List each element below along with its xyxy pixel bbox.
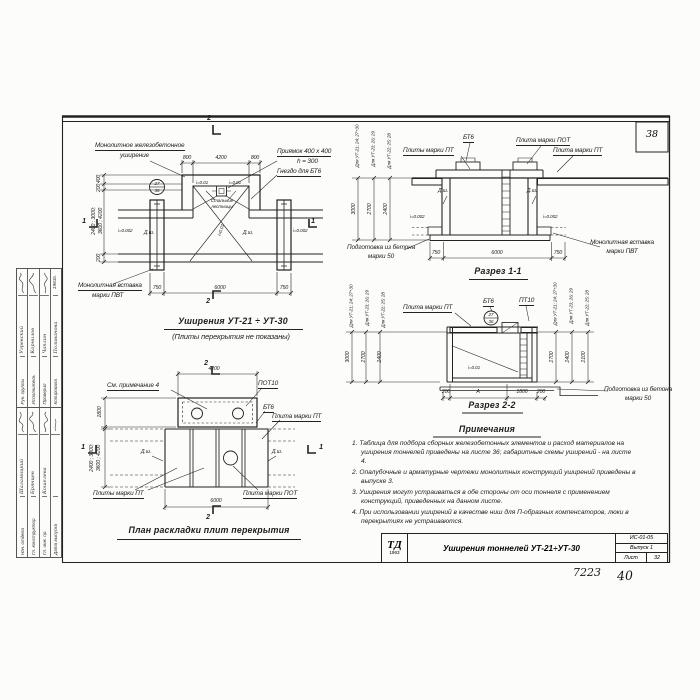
plan-top-subtitle: (Плиты перекрытия не показаны) — [172, 333, 290, 341]
plan-top-dim-400: 400 — [97, 175, 103, 183]
plan-top-label-steps-line2: лестницы — [211, 204, 233, 209]
stamp-row: Дата выпуска — [51, 408, 61, 557]
stamp-row: Гл. инж. пр. Кошелева — [40, 408, 51, 557]
plan-bottom-dim-1800: 1800 — [98, 406, 104, 417]
issue-number: Выпуск 1 — [616, 544, 667, 554]
sheet-row: Лист 32 — [616, 553, 667, 562]
stamp-role: Исполнитель — [31, 356, 36, 407]
plan-bottom-label-pt-bottom: Плиты марки ПТ — [93, 490, 144, 499]
stamp-row: Гл. конструктор Брянцев — [28, 408, 39, 557]
stamp-group-a: Нач. отдела Шаламицкий Гл. конструктор Б… — [17, 407, 61, 557]
stamp-row: Нач. отдела Шаламицкий — [17, 408, 28, 557]
section2-dim-200-left: 200 — [442, 390, 450, 396]
section-1-1-lines — [352, 143, 668, 280]
section1-dim-2700: 2700 — [368, 203, 374, 214]
section1-dim-2400: 2400 — [384, 203, 390, 214]
note-item-4: 4. При использовании уширений в качестве… — [352, 509, 638, 527]
section1-label-bt6: БТ6 — [463, 134, 474, 143]
plan-top-dim-4200: 4200 — [215, 156, 226, 162]
plan-top-title: Уширения УТ-21 ÷ УТ-30 — [178, 317, 288, 327]
section2-dim-200-right: 200 — [537, 390, 545, 396]
stamp-name: Чаплин — [42, 296, 48, 356]
plan-bottom-joint-right: Д.ш. — [272, 450, 282, 456]
stamp-role: Нач. отдела — [20, 496, 25, 557]
stamp-role: Рук. группы — [20, 356, 25, 407]
stamp-role: Дата выпуска — [53, 496, 58, 557]
plan-bottom-label-note4: См. примечание 4 — [107, 382, 159, 391]
section2-label-bt6: БТ6 — [483, 298, 494, 307]
stamp-name: Брянцев — [30, 435, 36, 496]
section1-title: Разрез 1-1 — [474, 267, 521, 277]
signature-squiggle — [29, 408, 38, 435]
corner-sheet-number: 38 — [646, 129, 658, 140]
plan-top-dim-200a: 200 — [97, 184, 103, 192]
plan-bottom-label-pot-bottom: Плита марки ПОТ — [243, 490, 297, 499]
section1-dim-6000: 6000 — [491, 251, 502, 257]
section1-group-label-1: Для УТ-21; 24; 27÷30 — [354, 125, 359, 168]
section2-node-bottom: 36 — [489, 319, 494, 324]
plan-top-label-pit-line2: h = 300 — [297, 158, 318, 165]
section1-dim-750-left: 750 — [432, 251, 440, 257]
plan-top-label-monolithic-line1: Монолитное железобетонное — [95, 142, 185, 151]
plan-top-dim-200b: 200 — [97, 254, 103, 262]
linework — [0, 0, 700, 700]
plan-top-joint-right: Д.ш. — [243, 231, 253, 237]
section1-label-pt-right: Плита марки ПТ — [553, 147, 602, 156]
plan-bottom-dim-6000: 6000 — [210, 499, 221, 505]
plan-top-node-bottom: 36 — [155, 188, 160, 193]
section1-joint-right: Д.ш. — [527, 189, 537, 195]
plan-top-section-mark-1-left: 1 — [82, 218, 86, 226]
stamp-row: Копировала Поливанова 1963г. — [51, 269, 61, 407]
section2-left-dim-3: 2400 — [378, 351, 384, 362]
section2-left-group-1: Для УТ-21; 24; 27÷30 — [348, 285, 353, 328]
left-stamp-strip: Нач. отдела Шаламицкий Гл. конструктор Б… — [16, 268, 62, 558]
stamp-row: Рук. группы Угревский — [17, 269, 28, 407]
section1-label-pt-left: Плиты марки ПТ — [403, 147, 454, 156]
section2-right-dim-3: 2100 — [582, 351, 588, 362]
note-item-1: 1. Таблица для подбора сборных железобет… — [352, 440, 638, 467]
section2-title: Разрез 2-2 — [468, 401, 515, 411]
section2-left-dim-1: 3000 — [346, 351, 352, 362]
section1-dim-3000: 3000 — [352, 203, 358, 214]
page-number-handwritten: 40 — [617, 568, 634, 584]
title-block-right: ИС-01-05 Выпуск 1 Лист 32 — [616, 534, 667, 562]
plan-top-dim-750-right: 750 — [280, 286, 288, 292]
stamp-group-b: Рук. группы Угревский Исполнитель Корнил… — [17, 269, 61, 407]
section1-label-insert-line1: Монолитная вставка — [590, 239, 654, 246]
plan-top-slope-top-left: i=0.01 — [196, 180, 208, 185]
section2-right-group-2: Для УТ-23; 26; 29 — [568, 288, 573, 324]
section1-label-pot: Плита марки ПОТ — [516, 137, 570, 146]
section2-dim-1800: 1800 — [516, 390, 527, 396]
signature-squiggle — [51, 408, 60, 435]
stamp-role: Гл. инж. пр. — [42, 496, 47, 557]
plan-bottom-label-bt6: БТ6 — [263, 404, 274, 413]
title-block: ТД 1963 Уширения тоннелей УТ-21÷УТ-30 ИС… — [381, 533, 668, 563]
series-code: ИС-01-05 — [616, 534, 667, 544]
stamp-role: Гл. конструктор — [31, 496, 36, 557]
section1-label-prep-line2: марки 50 — [368, 253, 394, 260]
plan-top-node-top: 27 — [155, 181, 160, 186]
section2-right-dim-2: 2400 — [566, 351, 572, 362]
stamp-row: Проверил Чаплин — [40, 269, 51, 407]
plan-top-joint-left: Д.ш. — [144, 231, 154, 237]
plan-top-slope-left: i=0.002 — [118, 228, 133, 233]
notes-block: 1. Таблица для подбора сборных железобет… — [352, 440, 638, 529]
section2-right-dim-1: 2700 — [550, 351, 556, 362]
plan-top-dim-800-right: 800 — [251, 156, 259, 162]
sheet-number: 32 — [647, 555, 667, 561]
plan-top-label-insert-line2: марки ПВТ — [92, 292, 123, 299]
plan-top-dim-750-left: 750 — [153, 286, 161, 292]
section2-slope: i=0.01 — [468, 365, 480, 370]
section2-node-top: 27 — [489, 312, 494, 317]
section2-label-prep-line1: Подготовка из бетона — [604, 386, 672, 393]
plan-bottom-mark-2-top: 2 — [204, 360, 208, 368]
plan-top-section-mark-2-top: 2 — [207, 115, 211, 123]
note-item-2: 2. Опалубочные и арматурные чертежи моно… — [352, 469, 638, 487]
plan-top-label-monolithic-line2: уширение — [120, 152, 149, 159]
plan-top-dim-var-line1: 2400 ; 3000; — [92, 207, 98, 235]
stamp-role: Проверил — [42, 356, 47, 407]
signature-squiggle — [40, 269, 49, 296]
plan-top-slope-right: i=0.002 — [293, 228, 308, 233]
stamp-name: Шаламицкий — [19, 435, 25, 496]
plan-bottom-dim-4200: 4200 — [208, 367, 219, 373]
stamp-name: Кошелева — [42, 435, 48, 496]
plan-bottom-dim-var-line2: 3600 ; 4200 — [97, 445, 103, 471]
section2-right-group-3: Для УТ-22; 25; 28 — [584, 290, 589, 326]
stamp-name: Поливанова — [53, 296, 59, 356]
org-logo: ТД 1963 — [382, 534, 408, 562]
stamp-row: Исполнитель Корнилов — [28, 269, 39, 407]
plan-top-label-socket: Гнездо для БТ6 — [277, 168, 321, 177]
note-item-3: 3. Уширения могут устраиваться в обе сто… — [352, 489, 638, 507]
org-logo-year: 1963 — [389, 551, 399, 556]
section2-right-group-1: Для УТ-21; 24; 27÷30 — [552, 283, 557, 326]
section1-slope-left: i=0.002 — [410, 214, 425, 219]
section1-group-label-3: Для УТ-22; 25; 28 — [386, 133, 391, 169]
plan-bottom-dim-var-line1: 2400 ; 3000; — [90, 444, 96, 472]
plan-bottom-title: План раскладки плит перекрытия — [128, 526, 289, 536]
section2-dim-A: А — [476, 390, 479, 396]
section1-slope-right: i=0.002 — [543, 214, 558, 219]
signature-squiggle — [40, 408, 49, 435]
plan-bottom-mark-1-right: 1 — [319, 444, 323, 452]
section2-left-group-3: Для УТ-22; 25; 28 — [380, 292, 385, 328]
plan-top-dim-6000: 6000 — [214, 286, 225, 292]
left-stamp: Нач. отдела Шаламицкий Гл. конструктор Б… — [16, 268, 62, 558]
signature-squiggle — [18, 408, 27, 435]
plan-top-dim-800-left: 800 — [183, 156, 191, 162]
section2-left-group-2: Для УТ-23; 26; 29 — [364, 290, 369, 326]
notes-title: Примечания — [459, 425, 515, 435]
stamp-name: Угревский — [19, 296, 25, 356]
section2-label-prep-line2: марки 50 — [625, 395, 651, 402]
plan-bottom-mark-2-bottom: 2 — [206, 514, 210, 522]
drawing-title: Уширения тоннелей УТ-21÷УТ-30 — [408, 534, 616, 562]
stamp-role: Копировала — [53, 356, 58, 407]
section2-label-pt: Плита марки ПТ — [403, 304, 452, 313]
section2-label-pt10: ПТ10 — [519, 297, 534, 306]
plan-top-section-mark-1-right: 1 — [311, 218, 315, 226]
signature-squiggle — [29, 269, 38, 296]
drawing-sheet: Монолитное железобетонное уширение Приям… — [0, 0, 700, 700]
plan-top-section-mark-2-bottom: 2 — [206, 298, 210, 306]
plan-bottom-label-pt-right: Плита марки ПТ — [272, 413, 321, 422]
stamp-name: Корнилов — [30, 296, 36, 356]
archive-number: 7223 — [573, 566, 601, 579]
section1-joint-left: Д.ш. — [438, 189, 448, 195]
plan-top-slope-top-right: i=0.01 — [229, 180, 241, 185]
plan-top-label-insert-line1: Монолитная вставка — [78, 282, 142, 291]
plan-bottom-mark-1-left: 1 — [81, 444, 85, 452]
sheet-label: Лист — [616, 553, 647, 562]
section1-label-prep-line1: Подготовка из бетона — [347, 244, 415, 251]
plan-bottom-joint-left: Д.ш. — [141, 450, 151, 456]
section1-label-insert-line2: марки ПВТ — [606, 248, 637, 255]
section1-dim-750-right: 750 — [554, 251, 562, 257]
stamp-year: 1963г. — [53, 269, 58, 296]
plan-bottom-label-pot10: ПОТ10 — [258, 380, 278, 389]
plan-top-label-pit-line1: Приямок 400 х 400 — [277, 148, 331, 157]
section1-group-label-2: Для УТ-23; 26; 29 — [370, 131, 375, 167]
section2-left-dim-2: 2700 — [362, 351, 368, 362]
signature-squiggle — [18, 269, 27, 296]
plan-top-label-steps-line1: Стальные — [211, 198, 233, 203]
plan-top-dim-var-line2: 3600 ; 4200 — [99, 208, 105, 234]
